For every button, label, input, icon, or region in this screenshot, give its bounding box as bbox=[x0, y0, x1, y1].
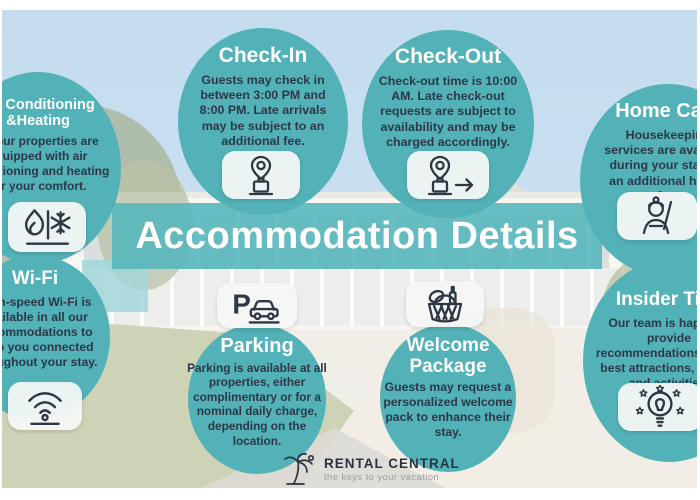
bubble-title: Home Care bbox=[615, 101, 700, 123]
bubble-title: Insider Tips bbox=[616, 290, 700, 311]
bubble-text: High-speed Wi-Fi is available in all our… bbox=[0, 295, 105, 371]
bubble-title: Check-In bbox=[219, 45, 308, 68]
accommodation-infographic: Accommodation Details Check-In Guests ma… bbox=[0, 0, 700, 500]
frame-top bbox=[0, 0, 700, 10]
bubble-text: All our properties are equipped with air… bbox=[0, 134, 113, 194]
bubble-text: Guests may check in between 3:00 PM and … bbox=[187, 73, 339, 150]
bubble-text: Our team is happy to provide recommendat… bbox=[594, 316, 700, 392]
bubble-title: Wi-Fi bbox=[12, 269, 58, 290]
lightbulb-stars-icon bbox=[618, 383, 700, 431]
bubble-text: Parking is available at all properties, … bbox=[183, 361, 331, 449]
brand-tagline: the keys to your vacation bbox=[324, 473, 460, 483]
bubble-title: Air Conditioning &Heating bbox=[0, 98, 108, 129]
title-banner: Accommodation Details bbox=[112, 203, 602, 269]
bubble-welcome-package: Welcome Package Guests may request a per… bbox=[380, 324, 516, 472]
brand-name: RENTAL CENTRAL bbox=[324, 457, 460, 472]
frame-left bbox=[0, 0, 2, 500]
bubble-text: Guests may request a personalized welcom… bbox=[383, 380, 513, 441]
bubble-title: Parking bbox=[220, 336, 293, 358]
brand-text: RENTAL CENTRAL the keys to your vacation bbox=[324, 457, 460, 483]
luggage-pin-icon bbox=[222, 151, 300, 199]
frame-bottom bbox=[0, 488, 700, 500]
parking-car-icon: P bbox=[217, 283, 297, 328]
palm-tree-icon bbox=[283, 453, 317, 487]
wifi-icon bbox=[8, 382, 82, 430]
svg-text:P: P bbox=[232, 289, 250, 320]
flame-snowflake-icon bbox=[8, 202, 86, 252]
gift-basket-icon bbox=[406, 281, 484, 327]
bubble-parking: Parking Parking is available at all prop… bbox=[188, 324, 326, 474]
luggage-depart-icon bbox=[407, 151, 489, 199]
brand-logo: RENTAL CENTRAL the keys to your vacation bbox=[283, 453, 460, 487]
bubble-text: Check-out time is 10:00 AM. Late check-o… bbox=[369, 74, 527, 151]
housekeeper-icon bbox=[617, 192, 697, 240]
bubble-title: Check-Out bbox=[395, 46, 501, 69]
bubble-title: Welcome Package bbox=[398, 336, 498, 377]
page-title: Accommodation Details bbox=[135, 215, 578, 258]
